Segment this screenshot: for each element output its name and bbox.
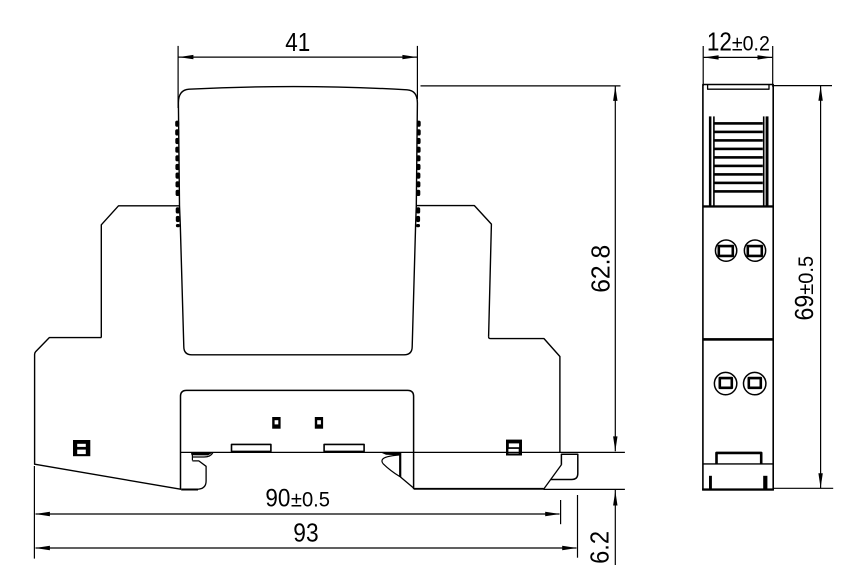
svg-text:±0.5: ±0.5 (291, 489, 330, 512)
svg-text:6.2: 6.2 (585, 531, 615, 564)
svg-text:12: 12 (707, 29, 732, 57)
svg-text:62.8: 62.8 (586, 245, 616, 293)
svg-text:±0.2: ±0.2 (732, 33, 770, 56)
svg-text:90: 90 (265, 485, 290, 513)
svg-text:41: 41 (285, 27, 310, 57)
svg-text:93: 93 (293, 517, 318, 547)
